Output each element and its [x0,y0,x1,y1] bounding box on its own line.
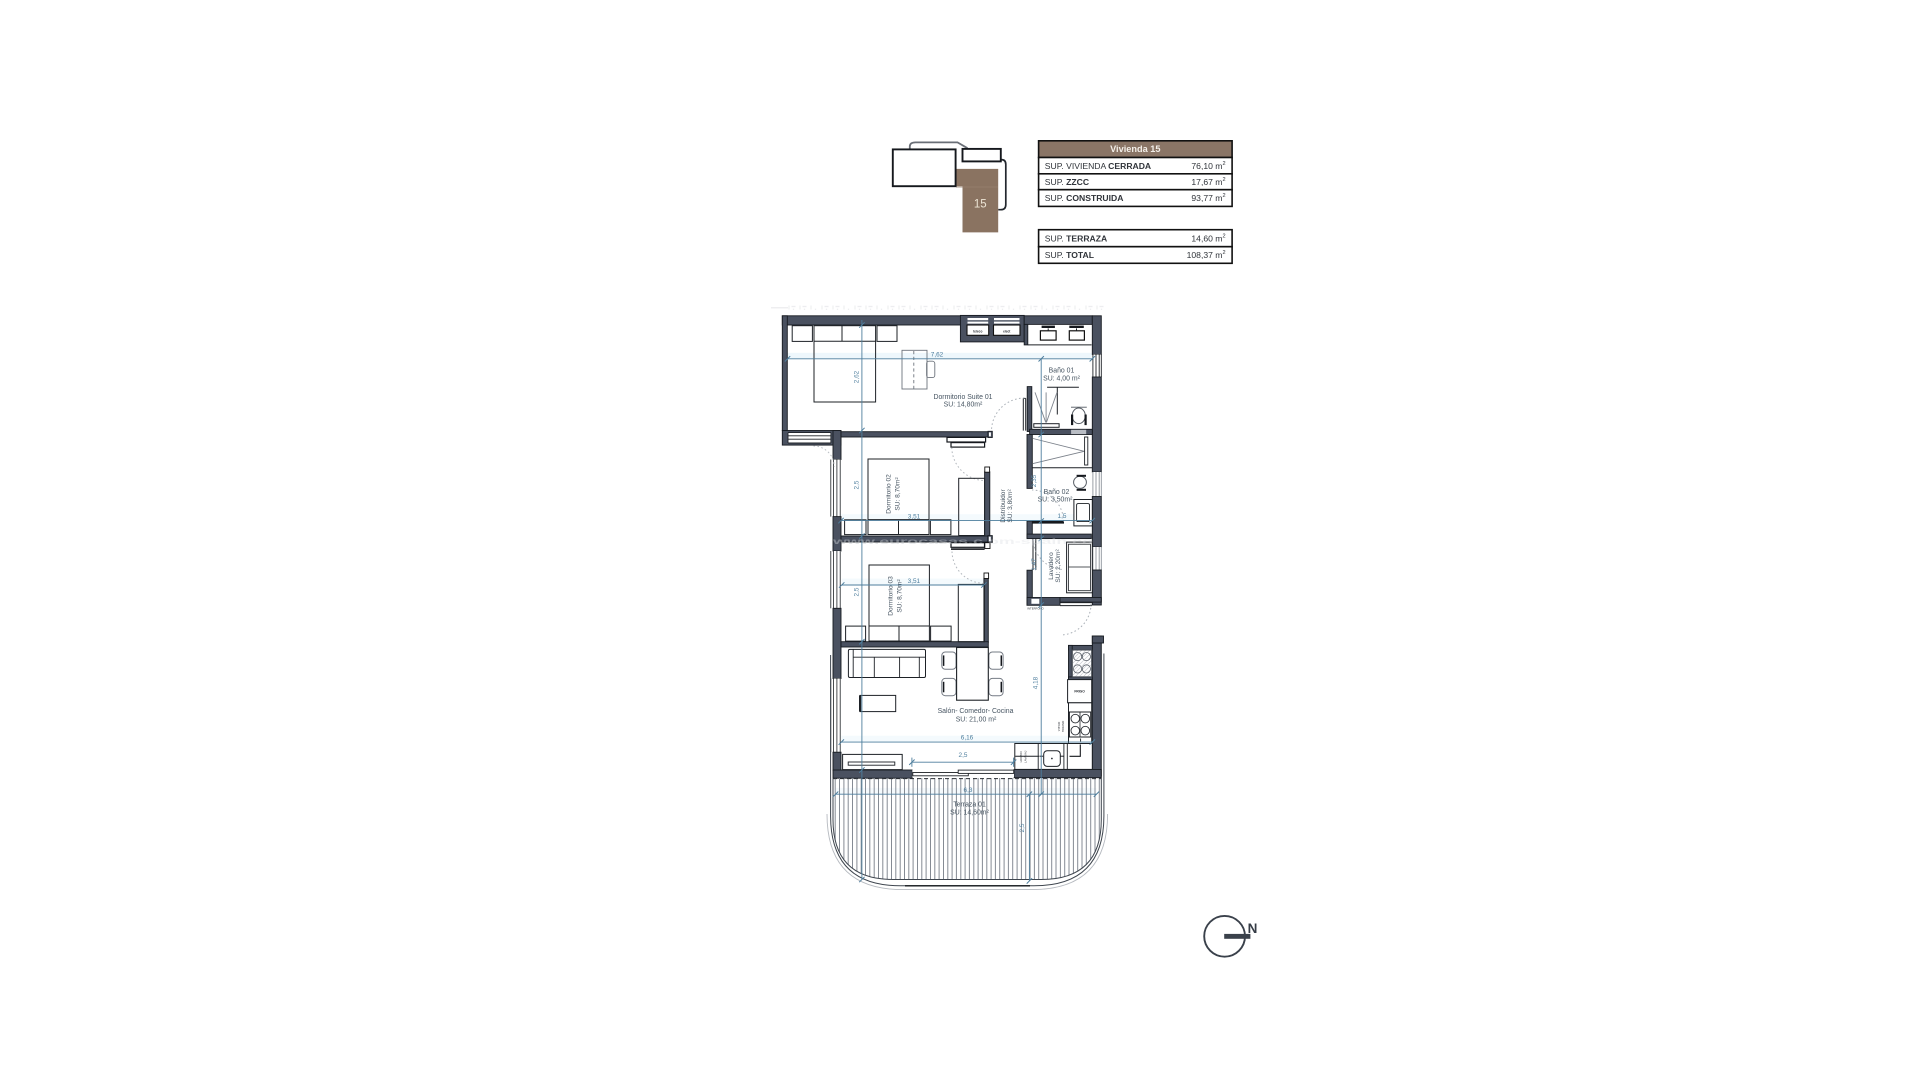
svg-text:1,5: 1,5 [1058,513,1067,520]
svg-text:N: N [1248,921,1258,936]
svg-text:15: 15 [974,199,987,211]
svg-text:SU: 3,80m²: SU: 3,80m² [1007,489,1014,523]
svg-text:17,67 m2: 17,67 m2 [1191,177,1225,187]
svg-text:HORNO: HORNO [1061,720,1065,732]
svg-text:2,5: 2,5 [854,480,861,489]
svg-text:Lavadero: Lavadero [1048,552,1055,580]
svg-text:Dormitorio 03: Dormitorio 03 [888,576,895,616]
svg-text:Distribuidor: Distribuidor [1000,489,1007,523]
svg-text:Dormitorio Suite 01: Dormitorio Suite 01 [934,394,993,401]
svg-text:SU: 8,70m²: SU: 8,70m² [895,477,902,511]
svg-text:93,77 m2: 93,77 m2 [1191,193,1225,203]
svg-text:SU: 8,70m²: SU: 8,70m² [897,579,904,613]
svg-text:Baño 01: Baño 01 [1049,368,1075,375]
svg-text:SU: 3,50m²: SU: 3,50m² [1038,496,1074,503]
svg-text:6,3: 6,3 [964,787,973,794]
svg-text:SU: 2,20m²: SU: 2,20m² [1055,549,1062,583]
svg-text:teleco: teleco [973,330,982,334]
svg-text:SUP. ZZCC: SUP. ZZCC [1045,177,1089,187]
svg-text:SUP. VIVIENDA CERRADA: SUP. VIVIENDA CERRADA [1045,161,1151,171]
svg-text:Dormitorio 02: Dormitorio 02 [886,474,893,514]
svg-text:Baño 02: Baño 02 [1044,489,1070,496]
svg-text:2,62: 2,62 [854,370,861,383]
svg-text:Salón- Comedor- Cocina: Salón- Comedor- Cocina [938,708,1014,715]
svg-text:INTERFONO: INTERFONO [1027,607,1044,611]
svg-text:SUP. TERRAZA: SUP. TERRAZA [1045,233,1107,243]
svg-text:elect: elect [1003,330,1011,334]
svg-text:7,62: 7,62 [931,351,944,358]
svg-text:om-spain.co: om-spain.co [988,537,1093,546]
svg-text:2,5: 2,5 [959,752,968,759]
svg-text:2,5: 2,5 [1019,823,1026,832]
svg-text:108,37 m2: 108,37 m2 [1187,250,1226,260]
svg-text:FRIGO: FRIGO [1074,690,1085,694]
svg-text:2,35: 2,35 [1031,474,1038,487]
svg-text:Vivienda 15: Vivienda 15 [1110,144,1160,154]
svg-text:14,60 m2: 14,60 m2 [1191,233,1225,243]
svg-text:76,10 m2: 76,10 m2 [1191,161,1225,171]
svg-text:SU: 14,60m²: SU: 14,60m² [950,810,989,817]
svg-text:SU: 4,00 m²: SU: 4,00 m² [1043,375,1080,382]
svg-text:SUP. CONSTRUIDA: SUP. CONSTRUIDA [1045,193,1124,203]
svg-text:SUP. TOTAL: SUP. TOTAL [1045,250,1094,260]
svg-text:6,16: 6,16 [961,735,974,742]
svg-text:1,47: 1,47 [1031,558,1038,571]
svg-text:SU: 14,80m²: SU: 14,80m² [944,402,983,409]
svg-text:4,18: 4,18 [1032,676,1039,689]
svg-text:3,51: 3,51 [908,578,921,585]
svg-text:3,51: 3,51 [908,513,921,520]
svg-text:SU: 21,00 m²: SU: 21,00 m² [956,717,997,724]
svg-text:www.eurocasas.c: www.eurocasas.c [831,537,984,546]
svg-text:Terraza 01: Terraza 01 [953,802,986,809]
svg-text:2,5: 2,5 [853,587,860,596]
